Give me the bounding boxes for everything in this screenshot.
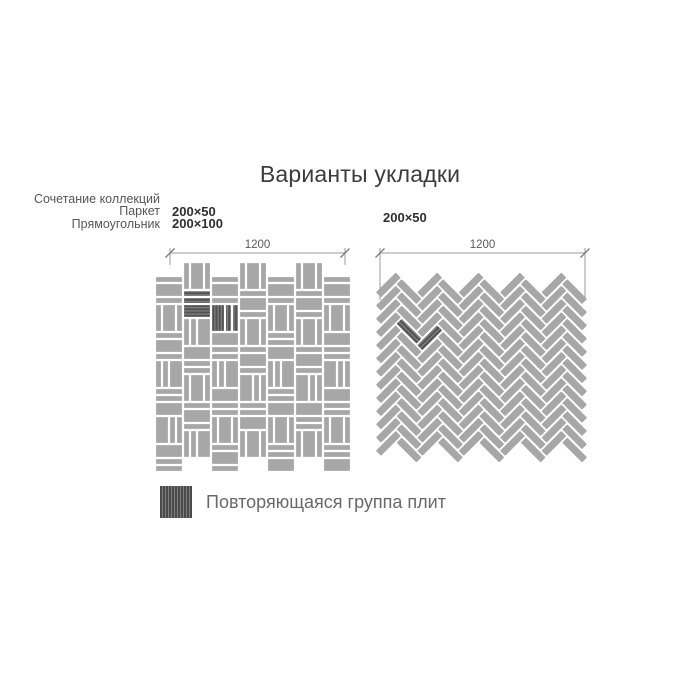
repeating-group-swatch-icon [160,486,192,518]
herringbone-pattern [376,273,587,463]
layout-variants-figure: Варианты укладки Сочетание коллекций Пар… [0,0,700,700]
legend: Повторяющаяся группа плит [160,486,446,518]
legend-label: Повторяющаяся группа плит [206,492,446,513]
tile-layout-diagrams [0,0,700,700]
parquet-basketweave-pattern [156,263,350,471]
